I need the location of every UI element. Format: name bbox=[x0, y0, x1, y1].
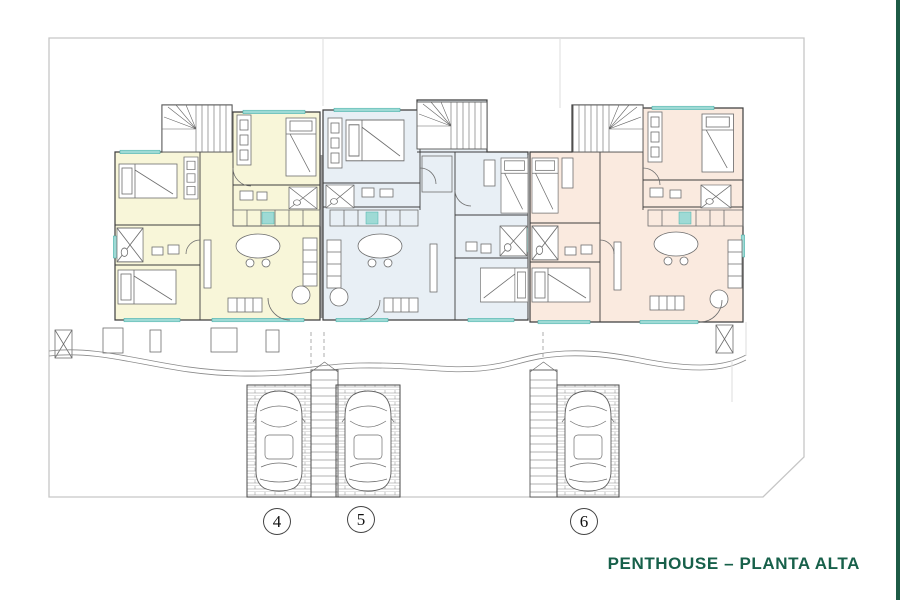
side-table-icon bbox=[710, 290, 728, 308]
shower-icon bbox=[289, 187, 317, 209]
exterior-staircase bbox=[311, 332, 338, 497]
unit-6-number: 6 bbox=[580, 512, 589, 532]
bed-icon bbox=[286, 118, 316, 176]
floor-plan-drawing bbox=[0, 0, 900, 600]
parking-space-4 bbox=[247, 385, 311, 497]
wardrobe-icon bbox=[648, 112, 662, 162]
planter bbox=[211, 328, 237, 352]
sink-icon bbox=[581, 245, 592, 254]
unit-6-plan bbox=[529, 105, 745, 324]
bench-icon bbox=[228, 298, 262, 312]
shower-icon bbox=[701, 185, 731, 208]
tv-unit-icon bbox=[204, 240, 211, 288]
bed-icon bbox=[501, 158, 528, 213]
bench-icon bbox=[384, 298, 418, 312]
planter bbox=[103, 328, 123, 353]
tv-unit-icon bbox=[614, 242, 621, 290]
sofa-icon bbox=[728, 240, 742, 288]
pillar-icon bbox=[55, 330, 72, 358]
wardrobe-icon bbox=[184, 157, 198, 199]
sink-icon bbox=[362, 188, 374, 197]
toilet-icon bbox=[152, 247, 163, 255]
car-icon bbox=[342, 391, 394, 491]
shower-icon bbox=[532, 226, 558, 260]
bed-icon bbox=[119, 164, 177, 198]
unit-4-badge: 4 bbox=[263, 508, 291, 535]
unit-5-plan bbox=[322, 100, 530, 322]
car-icon bbox=[562, 391, 614, 491]
sink-icon bbox=[240, 191, 253, 200]
wardrobe-icon bbox=[562, 158, 573, 188]
wardrobe-icon bbox=[484, 160, 495, 186]
unit-4-plan bbox=[113, 105, 320, 322]
sink-icon bbox=[670, 190, 681, 198]
bench-icon bbox=[650, 296, 684, 310]
sink-icon bbox=[650, 188, 663, 197]
sink-icon bbox=[168, 245, 179, 254]
sink-icon bbox=[679, 212, 691, 224]
floor-plan: 4 5 6 PENTHOUSE – PLANTA ALTA bbox=[0, 0, 900, 600]
green-edge-bar bbox=[896, 0, 900, 600]
shower-icon bbox=[117, 228, 143, 262]
bed-icon bbox=[480, 268, 528, 302]
unit-5-badge: 5 bbox=[347, 506, 375, 533]
sink-icon bbox=[257, 192, 267, 200]
bed-icon bbox=[532, 158, 558, 213]
sink-icon bbox=[466, 242, 477, 251]
unit-4-number: 4 bbox=[273, 512, 282, 532]
parking-space-6 bbox=[557, 385, 619, 497]
shower-icon bbox=[326, 185, 354, 208]
bed-icon bbox=[118, 270, 176, 304]
car-icon bbox=[253, 391, 305, 491]
planter bbox=[150, 330, 161, 352]
bed-icon bbox=[532, 268, 590, 302]
bed-icon bbox=[702, 114, 734, 172]
sink-icon bbox=[262, 212, 274, 224]
pillar-icon bbox=[716, 325, 733, 353]
page-title: PENTHOUSE – PLANTA ALTA bbox=[608, 554, 860, 574]
sofa-icon bbox=[303, 238, 317, 286]
parking-space-5 bbox=[336, 385, 400, 497]
shower-icon bbox=[500, 226, 527, 256]
toilet-icon bbox=[481, 244, 491, 253]
planter bbox=[266, 330, 279, 352]
unit-5-number: 5 bbox=[357, 510, 366, 530]
side-table-icon bbox=[330, 288, 348, 306]
tv-unit-icon bbox=[430, 244, 437, 292]
toilet-icon bbox=[565, 247, 576, 255]
sink-icon bbox=[380, 189, 393, 197]
sink-icon bbox=[366, 212, 378, 224]
stair-icon bbox=[162, 105, 232, 152]
side-table-icon bbox=[292, 286, 310, 304]
wardrobe-icon bbox=[237, 115, 251, 165]
stair-icon bbox=[573, 105, 643, 152]
wardrobe-icon bbox=[328, 118, 342, 168]
stair-icon bbox=[417, 102, 487, 149]
unit-6-badge: 6 bbox=[570, 508, 598, 535]
bed-icon bbox=[346, 120, 404, 161]
sofa-icon bbox=[327, 240, 341, 288]
